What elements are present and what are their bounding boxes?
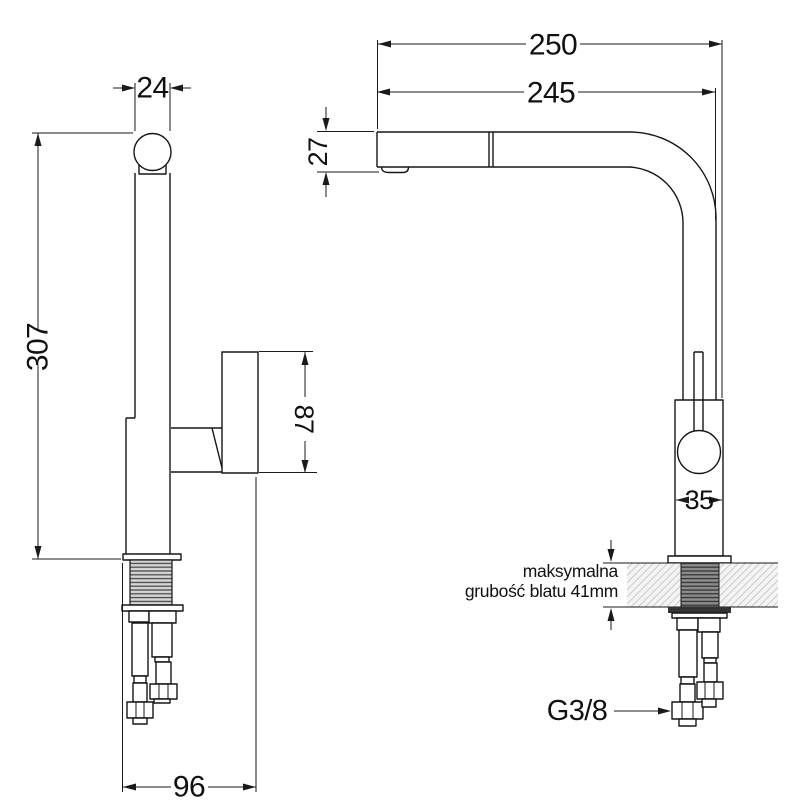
spout-tube-inner <box>493 167 683 400</box>
hose-side-right <box>697 632 723 707</box>
front-body-outline <box>126 173 170 554</box>
dimension-24: 24 <box>113 72 191 132</box>
dimension-g38: G3/8 <box>547 695 671 727</box>
fitting-block-right-2 <box>698 618 720 632</box>
dim-96-label: 96 <box>173 771 205 800</box>
hex-nut <box>150 684 177 699</box>
fitting-block-left-2 <box>677 618 698 630</box>
hose-side-left <box>672 630 703 726</box>
dimension-counter-thickness: maksymalna grubość blatu 41mm <box>465 540 619 630</box>
front-view <box>122 134 258 725</box>
dimension-245: 245 <box>377 77 716 221</box>
dim-250-label: 250 <box>529 29 577 62</box>
body-side <box>675 400 723 556</box>
mounting-washer-side <box>668 607 731 613</box>
dimension-87: 87 <box>259 352 319 474</box>
base-flange-side <box>668 556 731 563</box>
hex-nut <box>697 682 723 699</box>
technical-drawing-page: 24 307 87 96 250 <box>0 0 800 800</box>
threaded-shank-front <box>130 560 172 605</box>
mounting-washer-front <box>122 605 183 611</box>
washer-2 <box>672 613 727 618</box>
lever-connector <box>171 428 222 472</box>
hose-front-right <box>150 623 177 703</box>
dimension-27: 27 <box>303 107 379 197</box>
dim-307-label: 307 <box>22 323 55 371</box>
faucet-dimension-drawing: 24 307 87 96 250 <box>0 0 800 800</box>
threaded-shank-side <box>681 563 719 607</box>
side-view <box>377 132 778 726</box>
hex-nut-g38 <box>672 702 703 719</box>
hose-front-left <box>127 623 153 724</box>
dimension-307: 307 <box>22 133 134 559</box>
aerator <box>382 167 409 173</box>
fitting-block-left <box>129 611 149 622</box>
lever-front <box>222 352 258 473</box>
dim-24-label: 24 <box>136 72 168 105</box>
dim-g38-label: G3/8 <box>547 695 607 727</box>
dim-27-label: 27 <box>303 138 333 167</box>
handle-ball <box>678 431 721 474</box>
pullout-spout-head <box>377 132 493 167</box>
base-flange-front <box>123 554 181 560</box>
hex-nut <box>127 702 153 718</box>
dim-87-label: 87 <box>289 405 319 434</box>
fitting-block-right <box>149 611 176 623</box>
dim-245-label: 245 <box>527 77 575 110</box>
counter-note-line2: grubość blatu 41mm <box>465 581 618 601</box>
knob-circle <box>134 134 171 171</box>
counter-note-line1: maksymalna <box>523 561 619 581</box>
dim-35-label: 35 <box>685 485 714 515</box>
